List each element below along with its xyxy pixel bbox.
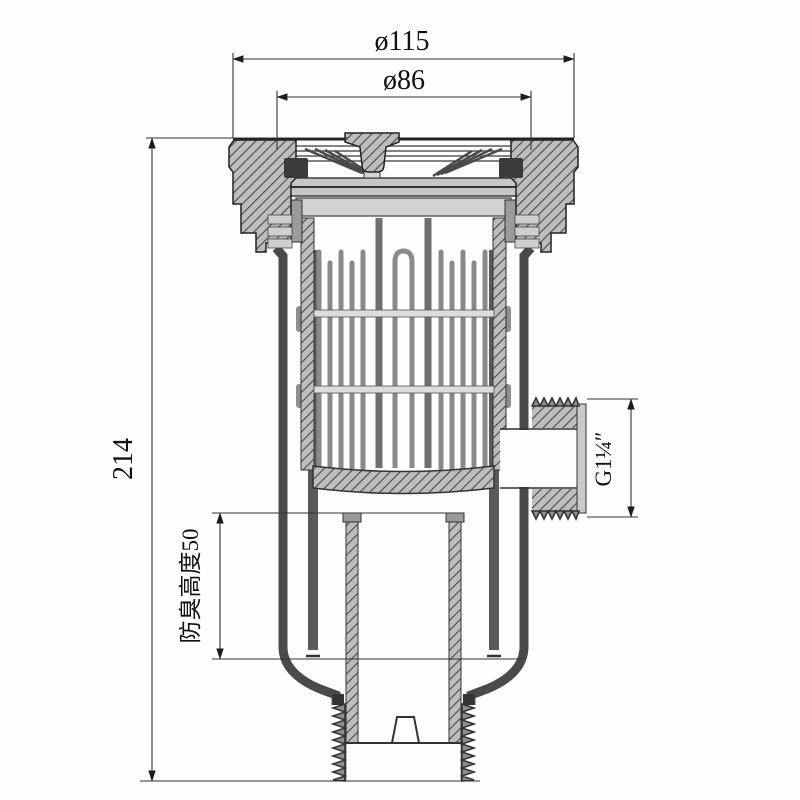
label-odor-seal-height: 防臭高度50 <box>178 529 203 644</box>
strainer-basket <box>301 218 506 494</box>
seal-wedge-right <box>499 158 523 178</box>
label-side-thread: G1¼″ <box>591 432 616 487</box>
standpipe-riser <box>333 513 474 743</box>
seal-wedge-left <box>284 158 308 178</box>
dimension-top-inner-diameter <box>277 91 531 150</box>
basket-tie-ring-upper <box>314 310 494 317</box>
basket-top-ring <box>296 198 511 216</box>
port-thread-bottom <box>532 511 579 519</box>
drain-cross-section-drawing: ø115 ø86 214 防臭高度50 G1¼″ <box>0 0 800 800</box>
outlet-thread-left <box>333 704 345 781</box>
basket-center-channel <box>379 218 428 468</box>
technical-drawing-canvas: ø115 ø86 214 防臭高度50 G1¼″ <box>0 0 800 800</box>
top-flange-assembly <box>229 133 578 252</box>
side-threaded-port <box>500 398 586 519</box>
flow-divider-tab <box>392 717 419 743</box>
clamp-left <box>333 694 344 705</box>
basket-tie-ring-lower <box>314 386 494 393</box>
port-thread-top <box>532 398 579 406</box>
basket-ribs <box>319 252 485 468</box>
outlet-thread-right <box>462 704 474 781</box>
grate-louvers <box>305 149 502 176</box>
dimension-odor-seal-height <box>212 513 523 659</box>
label-top-outer-diameter: ø115 <box>375 26 430 57</box>
clamp-right <box>463 694 474 705</box>
basket-bottom-plate <box>313 466 494 494</box>
label-overall-height: 214 <box>108 438 139 480</box>
port-face <box>577 404 586 513</box>
label-top-inner-diameter: ø86 <box>383 65 425 96</box>
